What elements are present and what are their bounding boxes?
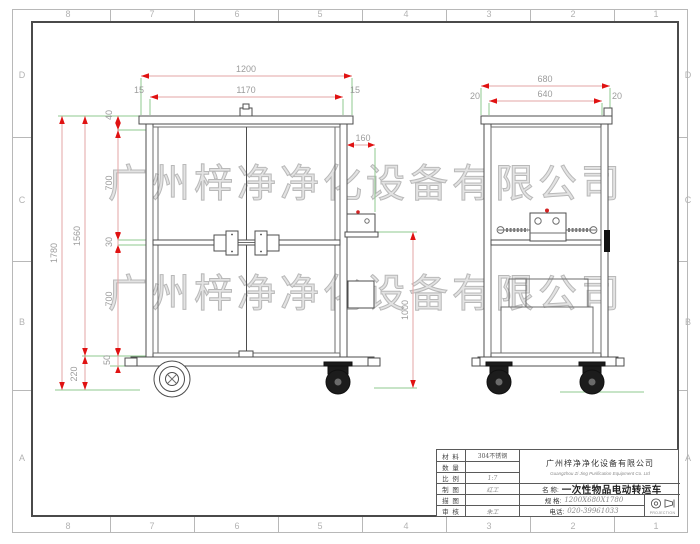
side-left-post	[484, 124, 491, 357]
dim-front-top-rail: 40	[104, 110, 114, 120]
front-view	[125, 104, 380, 397]
caster-wheel-side-left	[486, 362, 512, 394]
tb-label-checked: 审 核	[437, 505, 465, 516]
chassis-foot-left	[125, 358, 137, 366]
left-post	[146, 124, 153, 357]
dim-front-overall-width: 1200	[236, 64, 256, 74]
emergency-button	[356, 210, 360, 214]
spec-value: 1200X680X1780	[564, 496, 623, 504]
product-name: 一次性物品电动转运车	[562, 483, 662, 494]
door-knob-left	[214, 235, 226, 251]
top-plate	[139, 116, 353, 124]
side-top-plate	[481, 116, 612, 124]
projection-symbol-icon	[648, 497, 678, 510]
center-bracket	[239, 351, 253, 357]
battery-box-lower	[501, 307, 593, 353]
dim-front-overall-height: 1780	[49, 243, 59, 263]
dim-side-overall-depth: 680	[537, 74, 552, 84]
dim-side-edge-right: 20	[612, 91, 622, 101]
dim-front-inner-width: 1170	[236, 85, 255, 95]
dim-side-edge-left: 20	[470, 91, 480, 101]
dim-front-upper-panel: 700	[104, 175, 114, 190]
projection-caption: PROJECTION	[650, 511, 676, 515]
emergency-button-side	[545, 209, 549, 213]
side-foot-right	[616, 358, 624, 366]
tb-label-traced: 描 图	[437, 494, 465, 505]
top-latch-knob	[243, 104, 249, 109]
dim-front-lower-panel: 700	[104, 291, 114, 306]
dim-front-push-height: 1000	[400, 300, 410, 320]
caster-wheel-side-right	[579, 362, 605, 394]
tb-value-material: 304不锈钢	[465, 450, 519, 461]
dim-front-edge-right: 15	[350, 85, 360, 95]
chassis-foot-right	[368, 358, 380, 366]
door-knob-right	[267, 235, 279, 251]
tb-label-scale: 比 例	[437, 472, 465, 483]
caster-wheel-front	[324, 362, 352, 394]
side-handle-tab	[604, 230, 610, 252]
drive-wheel	[154, 361, 190, 397]
dim-front-base-rail: 50	[102, 355, 112, 365]
battery-box-upper	[509, 279, 588, 307]
tb-label-material: 材 料	[437, 450, 465, 461]
company-name-cn: 广州梓净净化设备有限公司	[546, 458, 654, 469]
tb-label-drawn: 制 图	[437, 483, 465, 494]
control-box	[347, 214, 375, 232]
dim-front-caster-height: 220	[69, 366, 79, 381]
tb-company: 广州梓净净化设备有限公司 Guangzhou Zi Jing Purificat…	[519, 450, 680, 483]
tb-value-drawn: 红工	[465, 483, 519, 494]
tb-phone: 电话: 020-39961033	[519, 505, 644, 516]
tb-value-traced	[465, 494, 519, 505]
dim-front-mid-shelf: 30	[104, 237, 114, 247]
tb-product-name: 名 称: 一次性物品电动转运车	[519, 483, 680, 494]
tb-projection: PROJECTION	[644, 494, 680, 516]
tb-value-checked: 朱工	[465, 505, 519, 516]
side-foot-left	[472, 358, 480, 366]
dim-front-edge-left: 15	[134, 85, 144, 95]
tb-value-quantity	[465, 461, 519, 472]
tb-value-scale: 1:7	[465, 472, 519, 483]
control-box-bracket	[345, 232, 378, 237]
tb-label-quantity: 数 量	[437, 461, 465, 472]
company-name-en: Guangzhou Zi Jing Purification Equipment…	[550, 471, 650, 476]
dim-front-control-box-width: 160	[355, 133, 370, 143]
side-view	[472, 108, 624, 394]
dim-front-body-height: 1560	[72, 226, 82, 246]
side-control-box	[530, 213, 566, 241]
dim-side-inner-depth: 640	[537, 89, 552, 99]
phone-value: 020-39961033	[567, 507, 618, 515]
tb-spec: 规 格: 1200X680X1780	[519, 494, 644, 505]
battery-box-front	[348, 281, 374, 308]
right-post	[340, 124, 347, 357]
title-block: 材 料 304不锈钢 广州梓净净化设备有限公司 Guangzhou Zi Jin…	[436, 449, 679, 517]
